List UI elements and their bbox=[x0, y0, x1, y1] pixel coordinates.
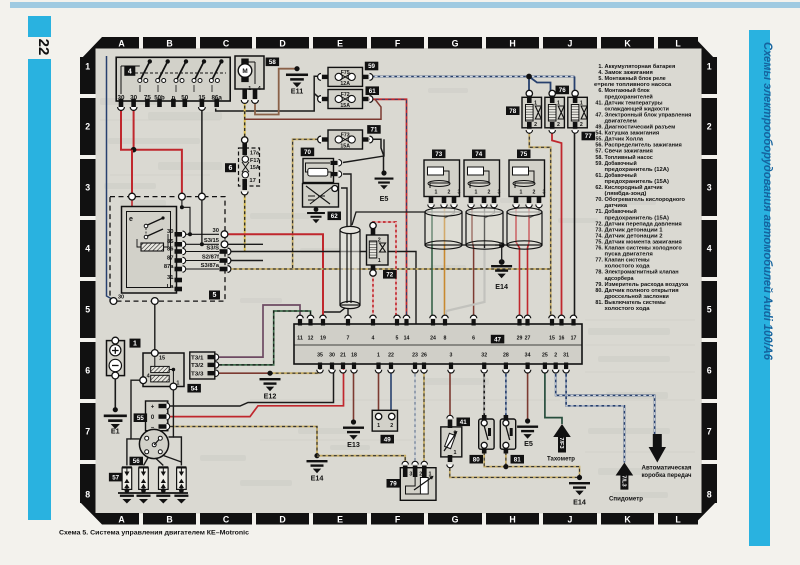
svg-text:4: 4 bbox=[85, 244, 90, 254]
svg-text:1: 1 bbox=[133, 340, 137, 347]
svg-text:Монтажный блок реле: Монтажный блок реле bbox=[605, 75, 666, 82]
svg-text:70: 70 bbox=[304, 149, 311, 156]
svg-text:2: 2 bbox=[580, 122, 583, 128]
svg-text:+: + bbox=[151, 404, 155, 410]
svg-text:Кислородный датчик: Кислородный датчик bbox=[605, 184, 663, 191]
svg-text:6: 6 bbox=[707, 366, 712, 376]
svg-text:7: 7 bbox=[85, 427, 90, 437]
svg-text:73: 73 bbox=[435, 151, 442, 158]
svg-text:H: H bbox=[509, 38, 515, 48]
svg-text:L: L bbox=[675, 38, 681, 48]
svg-text:3: 3 bbox=[707, 183, 712, 193]
svg-text:1: 1 bbox=[707, 62, 712, 72]
svg-text:Монтажный блок: Монтажный блок bbox=[605, 87, 650, 94]
svg-text:30: 30 bbox=[167, 229, 173, 235]
svg-text:6: 6 bbox=[85, 366, 90, 376]
svg-text:D: D bbox=[279, 38, 285, 48]
svg-text:7/L3: 7/L3 bbox=[620, 475, 626, 486]
svg-text:54: 54 bbox=[191, 385, 198, 392]
svg-text:12: 12 bbox=[308, 336, 314, 342]
svg-text:2: 2 bbox=[390, 423, 393, 429]
svg-text:35: 35 bbox=[317, 353, 323, 359]
svg-text:6: 6 bbox=[229, 165, 233, 172]
svg-text:7/F3: 7/F3 bbox=[558, 437, 564, 448]
svg-text:15А: 15А bbox=[250, 165, 260, 171]
svg-text:77.: 77. bbox=[595, 258, 603, 264]
svg-text:15А: 15А bbox=[340, 143, 350, 149]
svg-text:Е12: Е12 bbox=[264, 392, 277, 401]
svg-text:41: 41 bbox=[460, 419, 467, 426]
svg-text:78.: 78. bbox=[595, 270, 603, 276]
svg-text:Аккумуляторная батарея: Аккумуляторная батарея bbox=[605, 63, 676, 70]
svg-text:C: C bbox=[223, 38, 230, 48]
svg-text:D: D bbox=[279, 514, 285, 524]
svg-text:86: 86 bbox=[167, 246, 174, 252]
svg-text:A: A bbox=[118, 38, 125, 48]
svg-text:C: C bbox=[223, 514, 230, 524]
svg-text:Схемы электрооборудования авто: Схемы электрооборудования автомобилей Au… bbox=[761, 42, 775, 360]
svg-text:78: 78 bbox=[509, 108, 516, 115]
svg-text:Е11: Е11 bbox=[291, 87, 303, 96]
svg-text:2: 2 bbox=[85, 122, 90, 132]
svg-text:1: 1 bbox=[85, 62, 90, 72]
svg-text:49: 49 bbox=[384, 436, 391, 443]
svg-text:58: 58 bbox=[269, 59, 276, 66]
svg-text:56: 56 bbox=[133, 458, 140, 465]
svg-text:59.: 59. bbox=[595, 161, 603, 167]
svg-text:75: 75 bbox=[520, 151, 527, 158]
svg-text:6: 6 bbox=[472, 336, 475, 342]
svg-text:31: 31 bbox=[563, 353, 569, 359]
svg-text:17а: 17а bbox=[250, 151, 259, 157]
svg-text:14: 14 bbox=[404, 336, 410, 342]
svg-text:11: 11 bbox=[297, 336, 303, 342]
svg-text:47: 47 bbox=[494, 336, 501, 343]
svg-text:19: 19 bbox=[320, 336, 326, 342]
svg-text:Е1: Е1 bbox=[111, 427, 120, 436]
svg-text:Е5: Е5 bbox=[524, 439, 533, 448]
svg-text:Е14: Е14 bbox=[311, 474, 324, 483]
svg-text:4: 4 bbox=[128, 68, 132, 75]
svg-text:предохранителей: предохранителей bbox=[605, 93, 653, 100]
svg-text:5: 5 bbox=[707, 305, 712, 315]
svg-text:55: 55 bbox=[137, 415, 144, 422]
svg-text:4: 4 bbox=[707, 244, 712, 254]
svg-text:1: 1 bbox=[377, 423, 380, 429]
svg-text:F: F bbox=[395, 38, 401, 48]
svg-text:59: 59 bbox=[368, 63, 375, 70]
svg-text:дроссельной заслонки: дроссельной заслонки bbox=[605, 293, 669, 300]
svg-text:е: е bbox=[129, 216, 133, 223]
svg-text:K: K bbox=[624, 38, 631, 48]
svg-text:1: 1 bbox=[378, 258, 381, 264]
svg-text:Топливный насос: Топливный насос bbox=[605, 154, 653, 161]
svg-text:25: 25 bbox=[542, 353, 548, 359]
svg-text:3: 3 bbox=[450, 353, 453, 359]
svg-text:(лямбда-зонд): (лямбда-зонд) bbox=[605, 190, 647, 197]
svg-text:61.: 61. bbox=[595, 173, 603, 179]
svg-text:адсорбера: адсорбера bbox=[605, 275, 635, 282]
svg-text:22: 22 bbox=[35, 39, 52, 56]
svg-text:30: 30 bbox=[329, 353, 335, 359]
svg-text:15: 15 bbox=[159, 356, 165, 362]
svg-text:8: 8 bbox=[707, 490, 712, 500]
svg-text:31: 31 bbox=[167, 275, 174, 281]
svg-text:80: 80 bbox=[473, 456, 480, 463]
svg-text:3: 3 bbox=[458, 190, 461, 196]
svg-text:холостого хода: холостого хода bbox=[605, 306, 651, 312]
svg-text:1: 1 bbox=[454, 450, 457, 456]
svg-text:87а: 87а bbox=[164, 264, 174, 270]
svg-text:18: 18 bbox=[351, 353, 357, 359]
svg-text:30: 30 bbox=[118, 295, 124, 301]
svg-text:B: B bbox=[166, 514, 172, 524]
svg-text:S3/87а: S3/87а bbox=[201, 263, 220, 269]
svg-text:28: 28 bbox=[503, 353, 509, 359]
svg-text:17: 17 bbox=[571, 336, 577, 342]
svg-text:7: 7 bbox=[347, 336, 350, 342]
svg-text:2: 2 bbox=[557, 122, 560, 128]
svg-text:17: 17 bbox=[249, 178, 256, 184]
svg-text:Добавочный: Добавочный bbox=[605, 172, 637, 179]
svg-text:J: J bbox=[568, 38, 573, 48]
svg-text:24: 24 bbox=[430, 336, 436, 342]
svg-text:3: 3 bbox=[543, 190, 546, 196]
svg-text:Т3/2: Т3/2 bbox=[191, 363, 204, 369]
svg-text:2: 2 bbox=[707, 122, 712, 132]
svg-text:30: 30 bbox=[213, 228, 219, 234]
svg-text:2: 2 bbox=[533, 190, 536, 196]
svg-text:Lа: Lа bbox=[167, 284, 175, 290]
svg-text:2: 2 bbox=[448, 190, 451, 196]
svg-text:Е14: Е14 bbox=[495, 282, 508, 291]
svg-text:47.: 47. bbox=[595, 112, 603, 118]
svg-text:15: 15 bbox=[549, 336, 555, 342]
svg-text:H: H bbox=[509, 514, 515, 524]
svg-text:81.: 81. bbox=[595, 300, 603, 306]
svg-text:Обогреватель кислородного: Обогреватель кислородного bbox=[605, 196, 686, 203]
svg-text:Спидометр: Спидометр bbox=[609, 496, 643, 503]
svg-text:Схема 5. Система управления дв: Схема 5. Система управления двигателем К… bbox=[59, 530, 249, 537]
svg-text:21: 21 bbox=[340, 353, 346, 359]
svg-text:1: 1 bbox=[377, 353, 380, 359]
svg-text:Добавочный: Добавочный bbox=[605, 160, 637, 167]
svg-text:8: 8 bbox=[444, 336, 447, 342]
svg-text:87: 87 bbox=[167, 255, 173, 261]
svg-text:16: 16 bbox=[559, 336, 565, 342]
svg-text:Электронный блок управления: Электронный блок управления bbox=[605, 111, 692, 118]
svg-text:7: 7 bbox=[707, 427, 712, 437]
svg-text:Автоматическая: Автоматическая bbox=[642, 465, 692, 472]
svg-text:Добавочный: Добавочный bbox=[605, 208, 637, 215]
svg-text:F: F bbox=[395, 514, 401, 524]
svg-text:F17: F17 bbox=[250, 158, 260, 164]
svg-text:S3/15: S3/15 bbox=[204, 238, 220, 244]
svg-text:5: 5 bbox=[213, 292, 217, 299]
svg-text:61: 61 bbox=[369, 88, 376, 95]
svg-text:15А: 15А bbox=[340, 103, 350, 109]
svg-text:71.: 71. bbox=[595, 209, 603, 215]
svg-text:Электромагнитный клапан: Электромагнитный клапан bbox=[605, 269, 679, 276]
svg-text:57: 57 bbox=[112, 474, 119, 481]
svg-text:S3/S: S3/S bbox=[206, 245, 219, 251]
svg-text:62: 62 bbox=[331, 213, 338, 220]
svg-text:8: 8 bbox=[85, 490, 90, 500]
svg-text:2: 2 bbox=[419, 472, 422, 478]
svg-text:85: 85 bbox=[167, 239, 174, 245]
svg-text:4: 4 bbox=[372, 336, 375, 342]
svg-text:3: 3 bbox=[85, 183, 90, 193]
svg-text:E: E bbox=[337, 514, 343, 524]
svg-text:E: E bbox=[337, 38, 343, 48]
svg-text:B: B bbox=[166, 38, 172, 48]
svg-text:3: 3 bbox=[409, 472, 412, 478]
svg-text:79: 79 bbox=[390, 481, 397, 488]
svg-text:Е5: Е5 bbox=[380, 194, 389, 203]
svg-text:76.: 76. bbox=[595, 246, 603, 252]
svg-text:77: 77 bbox=[585, 133, 592, 140]
svg-text:23: 23 bbox=[412, 353, 418, 359]
svg-text:5: 5 bbox=[396, 336, 399, 342]
svg-text:J: J bbox=[568, 514, 573, 524]
svg-text:34: 34 bbox=[525, 353, 531, 359]
svg-text:K: K bbox=[624, 514, 631, 524]
svg-text:81: 81 bbox=[514, 456, 521, 463]
svg-text:A: A bbox=[118, 514, 125, 524]
svg-text:Т3/3: Т3/3 bbox=[191, 371, 204, 377]
svg-text:76: 76 bbox=[559, 87, 566, 94]
svg-text:2: 2 bbox=[554, 353, 557, 359]
svg-text:М: М bbox=[242, 68, 247, 75]
svg-text:26: 26 bbox=[421, 353, 427, 359]
svg-text:1: 1 bbox=[475, 190, 478, 196]
svg-text:L: L bbox=[675, 514, 681, 524]
svg-text:S2/87f: S2/87f bbox=[202, 254, 219, 260]
svg-text:32: 32 bbox=[481, 353, 487, 359]
svg-text:71: 71 bbox=[371, 127, 378, 134]
svg-text:72: 72 bbox=[386, 272, 393, 279]
svg-text:27: 27 bbox=[525, 336, 531, 342]
svg-text:коробка передач: коробка передач bbox=[642, 472, 692, 479]
svg-text:Е14: Е14 bbox=[573, 498, 586, 507]
svg-text:3: 3 bbox=[498, 190, 501, 196]
svg-text:74: 74 bbox=[475, 151, 482, 158]
svg-text:Т3/1: Т3/1 bbox=[191, 355, 204, 361]
svg-text:70.: 70. bbox=[595, 197, 603, 203]
svg-text:29: 29 bbox=[517, 336, 523, 342]
svg-text:12А: 12А bbox=[340, 81, 350, 87]
svg-text:4: 4 bbox=[258, 86, 261, 92]
svg-text:1: 1 bbox=[520, 190, 523, 196]
svg-text:2: 2 bbox=[488, 190, 491, 196]
svg-text:Тахометр: Тахометр bbox=[547, 456, 575, 463]
svg-text:Е13: Е13 bbox=[347, 440, 360, 449]
svg-text:6.: 6. bbox=[598, 88, 603, 94]
svg-text:80.: 80. bbox=[595, 288, 603, 294]
svg-text:G: G bbox=[452, 38, 459, 48]
svg-text:41.: 41. bbox=[595, 100, 603, 106]
svg-text:Диагностический разъем: Диагностический разъем bbox=[605, 124, 676, 131]
svg-text:62.: 62. bbox=[595, 185, 603, 191]
svg-text:G: G bbox=[452, 514, 459, 524]
svg-text:1: 1 bbox=[248, 86, 251, 92]
svg-text:1: 1 bbox=[435, 190, 438, 196]
svg-text:22: 22 bbox=[388, 353, 394, 359]
svg-text:5: 5 bbox=[85, 305, 90, 315]
svg-text:охлаждающей жидкости: охлаждающей жидкости bbox=[605, 105, 669, 112]
svg-text:2: 2 bbox=[534, 122, 537, 128]
